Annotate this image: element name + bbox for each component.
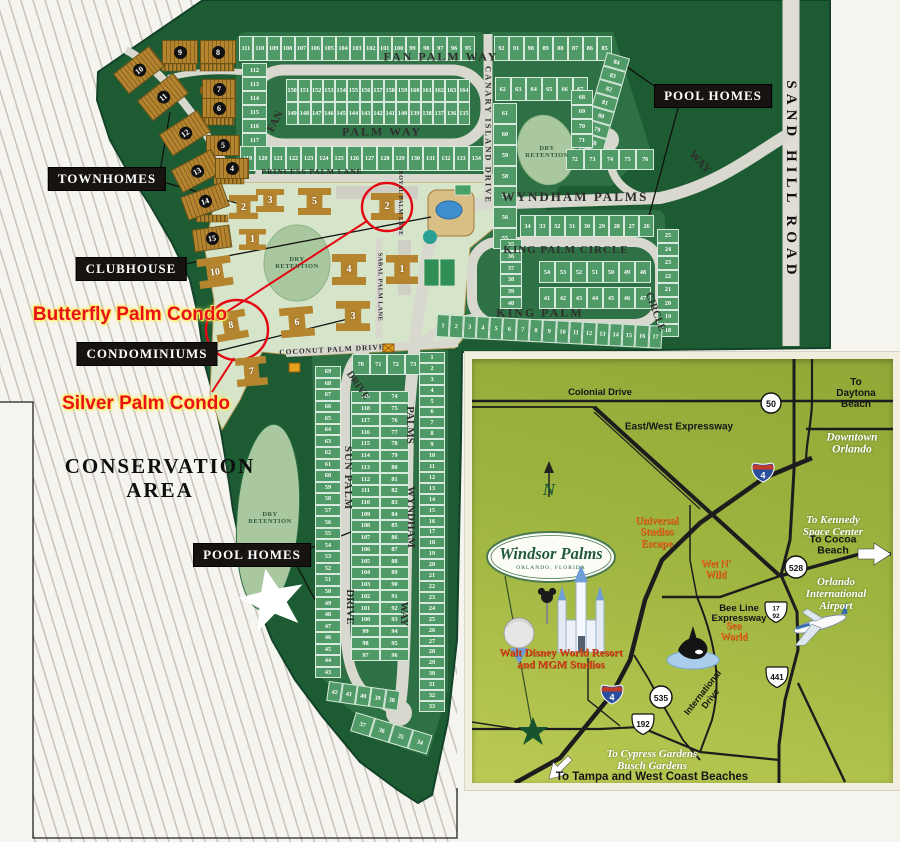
lot: 8	[419, 428, 445, 439]
lot: 150	[286, 79, 298, 102]
condo-number: 8	[228, 320, 235, 332]
dry-retention-label-mid: DRY RETENTION	[275, 256, 319, 270]
lot-strip-ne_west: 61605958575655	[493, 103, 517, 249]
sport-court	[455, 185, 471, 195]
lot: 63	[511, 77, 527, 101]
condo-number: 7	[249, 366, 255, 377]
lot: 79	[380, 450, 409, 462]
lot: 157	[372, 79, 384, 102]
pool-homes-box-sw: POOL HOMES	[193, 543, 311, 567]
inset-east-west-expressway: East/West Expressway	[625, 423, 733, 434]
lot: 68	[571, 90, 593, 105]
lot: 2	[449, 315, 463, 339]
lot: 130	[408, 146, 423, 171]
lot: 89	[380, 567, 409, 579]
lot: 162	[433, 79, 445, 102]
lot: 27	[419, 636, 445, 647]
lot: 117	[242, 133, 267, 147]
inset-downtown-orlando: Downtown Orlando	[826, 432, 877, 457]
street-palms-south: PALMS	[403, 406, 415, 444]
lot: 45	[603, 287, 619, 309]
lot: 105	[322, 36, 336, 61]
lot: 59	[493, 145, 517, 166]
lot: 50	[315, 586, 341, 598]
lot: 117	[351, 414, 380, 426]
lot: 15	[622, 324, 636, 348]
sea-world-orca-icon	[667, 626, 719, 669]
lot: 60	[493, 124, 517, 145]
lot: 156	[360, 79, 372, 102]
lot: 48	[315, 609, 341, 621]
street-wyndham-palms: WYNDHAM PALMS	[502, 190, 649, 204]
lot: 26	[639, 215, 654, 237]
lot: 10	[555, 320, 569, 344]
lot: 31	[419, 679, 445, 690]
lot: 159	[396, 79, 408, 102]
lot: 64	[526, 77, 542, 101]
lot: 109	[351, 508, 380, 520]
townhome-number: 10	[130, 61, 148, 79]
lot: 88	[553, 36, 568, 61]
lot: 25	[657, 229, 679, 243]
lot: 56	[493, 207, 517, 228]
lot: 17	[419, 527, 445, 538]
lot: 54	[539, 261, 555, 283]
lot: 12	[582, 322, 596, 346]
lot: 53	[555, 261, 571, 283]
lot: 23	[657, 256, 679, 270]
lot: 7	[515, 318, 529, 342]
lot: 65	[315, 412, 341, 424]
lot: 144	[347, 102, 359, 125]
clubhouse-box: CLUBHOUSE	[76, 257, 187, 281]
lot: 134	[469, 146, 484, 171]
lot: 9	[419, 439, 445, 450]
condo-number: 4	[347, 264, 352, 275]
lot: 94	[380, 626, 409, 638]
lot: 136	[445, 102, 457, 125]
inset-north-label: N	[543, 481, 555, 499]
lot: 111	[239, 36, 253, 61]
lot-strip-ne_inner: 68697071	[571, 90, 593, 148]
lot-strip-kp_top: 343332313029282726	[520, 215, 654, 237]
lot: 73	[584, 149, 602, 170]
lot: 74	[380, 391, 409, 403]
lot: 38	[383, 689, 400, 711]
inset-sea-world: Sea World	[720, 622, 747, 644]
street-wyndham-south: WYNDHAM	[404, 486, 416, 548]
lot: 13	[595, 322, 609, 346]
lot: 46	[315, 632, 341, 644]
lot-strip-kp_inner_top: 54535251504948	[539, 261, 651, 283]
lot: 52	[571, 261, 587, 283]
lot: 30	[580, 215, 595, 237]
lot: 33	[419, 701, 445, 712]
lot: 26	[419, 625, 445, 636]
lot: 104	[351, 567, 380, 579]
lot: 114	[351, 450, 380, 462]
lot: 139	[409, 102, 421, 125]
townhome-number: 14	[197, 193, 214, 210]
lot: 24	[657, 243, 679, 257]
lot: 55	[315, 528, 341, 540]
condo-number: 3	[268, 195, 273, 206]
lot: 91	[509, 36, 524, 61]
lot: 44	[315, 655, 341, 667]
lot: 16	[635, 324, 649, 348]
us192-shield: 192	[636, 720, 650, 729]
lot: 2	[419, 363, 445, 374]
lot: 12	[419, 472, 445, 483]
lot: 48	[635, 261, 651, 283]
lot: 154	[335, 79, 347, 102]
lot: 115	[242, 105, 267, 119]
lot: 128	[377, 146, 392, 171]
lot: 3	[419, 374, 445, 385]
inset-disney-mgm: Walt Disney World Resort and MGM Studios	[499, 648, 623, 672]
i4-shield-north: 4	[752, 463, 774, 482]
street-sabal-palm-lane: SABAL PALM LANE	[376, 253, 383, 322]
swimming-pool	[436, 201, 462, 219]
lot: 29	[594, 215, 609, 237]
lot: 65	[542, 77, 558, 101]
townhome-building: 4	[215, 158, 249, 179]
lot: 153	[323, 79, 335, 102]
street-king-palm: KING PALM	[496, 307, 583, 320]
svg-text:4: 4	[609, 693, 614, 703]
lot: 163	[445, 79, 457, 102]
lot: 21	[657, 283, 679, 297]
spa-pool	[423, 230, 437, 244]
lot: 25	[419, 614, 445, 625]
lot: 49	[315, 597, 341, 609]
townhome-number: 7	[213, 83, 226, 96]
lot: 1	[436, 314, 450, 338]
townhome-building: 8	[200, 40, 236, 64]
condo-number: 3	[351, 311, 356, 322]
inset-wet-n-wild: Wet N' Wild	[701, 560, 731, 582]
lot: 160	[409, 79, 421, 102]
condominiums-box: CONDOMINIUMS	[76, 342, 217, 366]
lot: 142	[372, 102, 384, 125]
lot: 21	[419, 570, 445, 581]
lot: 91	[380, 590, 409, 602]
lot: 58	[493, 166, 517, 187]
lot: 14	[419, 494, 445, 505]
condo-number: 1	[400, 264, 405, 275]
lot: 114	[242, 91, 267, 105]
lot: 11	[569, 321, 583, 345]
lot: 58	[315, 493, 341, 505]
lot: 7	[419, 417, 445, 428]
lot: 38	[500, 274, 522, 286]
street-sand-hill-road: SAND HILL ROAD	[783, 80, 799, 279]
lot: 109	[267, 36, 281, 61]
townhome-number: 12	[176, 124, 194, 142]
townhome-building: 6	[202, 98, 236, 118]
svg-text:4: 4	[760, 471, 765, 481]
street-canary-island-drive: CANARY ISLAND DRIVE	[483, 66, 492, 204]
inset-to-tampa: To Tampa and West Coast Beaches	[556, 771, 748, 783]
lot: 57	[315, 505, 341, 517]
lot: 61	[315, 459, 341, 471]
lot: 71	[571, 134, 593, 149]
lot: 32	[419, 690, 445, 701]
lot: 110	[351, 497, 380, 509]
lot: 11	[419, 461, 445, 472]
lot-strip-s_top: 70717273	[352, 354, 422, 375]
lot: 102	[364, 36, 378, 61]
lot: 87	[568, 36, 583, 61]
lot: 13	[419, 483, 445, 494]
lot-strip-s_west: 6968676665646362616059585756555453525150…	[315, 366, 341, 678]
lot: 89	[538, 36, 553, 61]
lot: 112	[351, 473, 380, 485]
lot: 145	[335, 102, 347, 125]
lot-strip-fp_inner_bot: 1491481471461451441431421411401391381371…	[286, 102, 470, 125]
lot: 1	[419, 352, 445, 363]
condo-number: 5	[312, 196, 317, 207]
pool-homes-box-ne: POOL HOMES	[654, 84, 772, 108]
windsor-palms-logo-subtitle: ORLANDO, FLORIDA	[516, 566, 585, 572]
lot: 18	[419, 537, 445, 548]
lot: 72	[387, 354, 405, 375]
lot-strip-ne_top: 9291908988878685	[494, 36, 612, 61]
lot: 5	[419, 396, 445, 407]
lot: 115	[351, 438, 380, 450]
lot: 140	[396, 102, 408, 125]
lot: 97	[351, 649, 380, 661]
lot: 28	[609, 215, 624, 237]
townhome-number: 11	[154, 88, 172, 106]
lot: 103	[350, 36, 364, 61]
inset-orlando-airport: Orlando International Airport	[806, 577, 867, 613]
lot-strip-ne_arc: 7273747576	[566, 149, 654, 170]
townhome-number: 15	[205, 231, 220, 246]
lot: 23	[419, 592, 445, 603]
lot: 47	[315, 620, 341, 632]
street-king-palm-circle: KING PALM CIRCLE	[503, 245, 628, 257]
lot: 43	[315, 667, 341, 679]
condo-number: 6	[294, 316, 300, 327]
lot: 8	[529, 319, 543, 343]
lot: 81	[380, 473, 409, 485]
lot: 67	[315, 389, 341, 401]
lot: 108	[281, 36, 295, 61]
windsor-palms-logo-text: Windsor Palms	[499, 545, 602, 563]
inset-to-cocoa-beach: To Cocoa Beach	[800, 535, 867, 558]
street-way-south: WAY	[397, 602, 409, 627]
lot: 30	[419, 668, 445, 679]
lot: 50	[603, 261, 619, 283]
lot: 62	[495, 77, 511, 101]
lot: 106	[351, 544, 380, 556]
lot: 107	[351, 532, 380, 544]
lot: 137	[433, 102, 445, 125]
lot: 59	[315, 482, 341, 494]
lot: 113	[351, 461, 380, 473]
inset-cypress-busch-gardens: To Cypress Gardens Busch Gardens	[607, 749, 698, 773]
sr528-shield: 528	[789, 563, 803, 573]
lot: 51	[587, 261, 603, 283]
townhome-number: 6	[213, 102, 226, 115]
lot: 152	[311, 79, 323, 102]
townhome-number: 9	[174, 46, 187, 59]
lot: 69	[315, 366, 341, 378]
lot: 19	[419, 548, 445, 559]
us50-shield: 50	[766, 399, 776, 409]
lot: 143	[360, 102, 372, 125]
lot: 96	[380, 649, 409, 661]
lot: 146	[323, 102, 335, 125]
lot: 51	[315, 574, 341, 586]
lot: 107	[295, 36, 309, 61]
lot: 110	[253, 36, 267, 61]
lot: 116	[351, 426, 380, 438]
lot: 132	[438, 146, 453, 171]
condo-number: 1	[250, 234, 255, 245]
dry-retention-label-ne: DRY RETENTION	[525, 145, 569, 159]
lot: 34	[520, 215, 535, 237]
lot: 104	[336, 36, 350, 61]
lot: 161	[421, 79, 433, 102]
lot: 147	[311, 102, 323, 125]
lot: 133	[454, 146, 469, 171]
lot: 68	[315, 378, 341, 390]
lot: 66	[315, 401, 341, 413]
lot: 44	[587, 287, 603, 309]
lot: 28	[419, 646, 445, 657]
inset-colonial-drive: Colonial Drive	[568, 388, 632, 398]
lot: 29	[419, 657, 445, 668]
lot: 80	[380, 461, 409, 473]
lot: 88	[380, 555, 409, 567]
resort-site-map: 1111101091081071061051041031021011009998…	[0, 0, 900, 842]
townhome-number: 8	[212, 46, 225, 59]
lot: 39	[500, 286, 522, 298]
street-royal-palm-lane: ROYAL PALM LANE	[397, 170, 403, 235]
us17-shield: 17	[772, 606, 780, 613]
lot: 27	[624, 215, 639, 237]
lot: 45	[315, 644, 341, 656]
lot: 10	[419, 450, 445, 461]
lot: 54	[315, 539, 341, 551]
street-fan-palm-way-top: FAN PALM WAY	[384, 51, 499, 64]
lot: 20	[657, 297, 679, 311]
lot: 105	[351, 555, 380, 567]
lot: 76	[636, 149, 654, 170]
lot: 90	[524, 36, 539, 61]
silver-palm-condo-label: Silver Palm Condo	[62, 393, 230, 415]
lot: 53	[315, 551, 341, 563]
lot: 5	[489, 317, 503, 341]
lot-strip-fp_inner_top: 1501511521531541551561571581591601611621…	[286, 79, 470, 102]
lot: 90	[380, 579, 409, 591]
lot: 64	[315, 424, 341, 436]
butterfly-palm-condo-label: Butterfly Palm Condo	[33, 304, 227, 326]
lot: 20	[419, 559, 445, 570]
street-princess-palm-lane: PRINCESS PALM LANE	[261, 168, 362, 176]
condo-number: 10	[209, 266, 220, 278]
lot: 61	[493, 103, 517, 124]
lot: 131	[423, 146, 438, 171]
lot: 15	[419, 505, 445, 516]
lot: 6	[502, 317, 516, 341]
lot: 95	[380, 637, 409, 649]
lot: 32	[550, 215, 565, 237]
lot: 69	[571, 105, 593, 120]
lot: 22	[657, 270, 679, 284]
street-drive-low: DRIVE	[343, 589, 355, 624]
lot: 112	[242, 63, 267, 77]
lot: 49	[619, 261, 635, 283]
lot: 16	[419, 516, 445, 527]
townhome-number: 13	[188, 162, 206, 180]
lot: 116	[242, 119, 267, 133]
lot: 52	[315, 563, 341, 575]
townhome-building: 9	[162, 40, 198, 64]
lot: 63	[315, 435, 341, 447]
lot: 70	[571, 119, 593, 134]
lot: 56	[315, 516, 341, 528]
lot: 149	[286, 102, 298, 125]
lot: 4	[419, 385, 445, 396]
lot: 158	[384, 79, 396, 102]
sr535-shield: 535	[654, 693, 668, 703]
lot: 106	[308, 36, 322, 61]
lot: 155	[347, 79, 359, 102]
lot: 127	[362, 146, 377, 171]
resort-location-star	[518, 717, 548, 745]
us441-shield: 441	[770, 673, 784, 682]
lot: 33	[535, 215, 550, 237]
lot: 151	[298, 79, 310, 102]
lot: 99	[351, 626, 380, 638]
lot: 4	[476, 316, 490, 340]
condo-number: 2	[241, 202, 246, 213]
dry-retention-label-sw: DRY RETENTION	[248, 511, 292, 525]
lot-strip-s_east: 1234567891011121314151617181920212223242…	[419, 352, 445, 712]
inset-to-daytona: To Daytona Beach	[834, 378, 878, 410]
street-palm-way: PALM WAY	[342, 126, 422, 139]
townhome-building: 7	[202, 79, 236, 99]
townhome-number: 4	[226, 162, 239, 175]
lot: 118	[351, 403, 380, 415]
tennis-court-1	[424, 259, 439, 286]
lot: 129	[393, 146, 408, 171]
street-sun-palm: SUN PALM	[341, 446, 353, 510]
lot: 108	[351, 520, 380, 532]
lot: 22	[419, 581, 445, 592]
conservation-area-label: CONSERVATION AREA	[65, 454, 256, 502]
lot: 75	[619, 149, 637, 170]
lot: 46	[619, 287, 635, 309]
lot: 74	[601, 149, 619, 170]
townhome-number: 5	[217, 139, 230, 152]
lot: 135	[458, 102, 470, 125]
lot: 111	[351, 485, 380, 497]
tennis-court-2	[440, 259, 455, 286]
lot: 113	[242, 77, 267, 91]
lot: 98	[351, 637, 380, 649]
condo-number: 2	[385, 201, 390, 212]
lot: 14	[608, 323, 622, 347]
lot: 86	[583, 36, 598, 61]
lot: 141	[384, 102, 396, 125]
townhomes-box: TOWNHOMES	[48, 167, 166, 191]
lot: 9	[542, 320, 556, 344]
lot: 6	[419, 407, 445, 418]
